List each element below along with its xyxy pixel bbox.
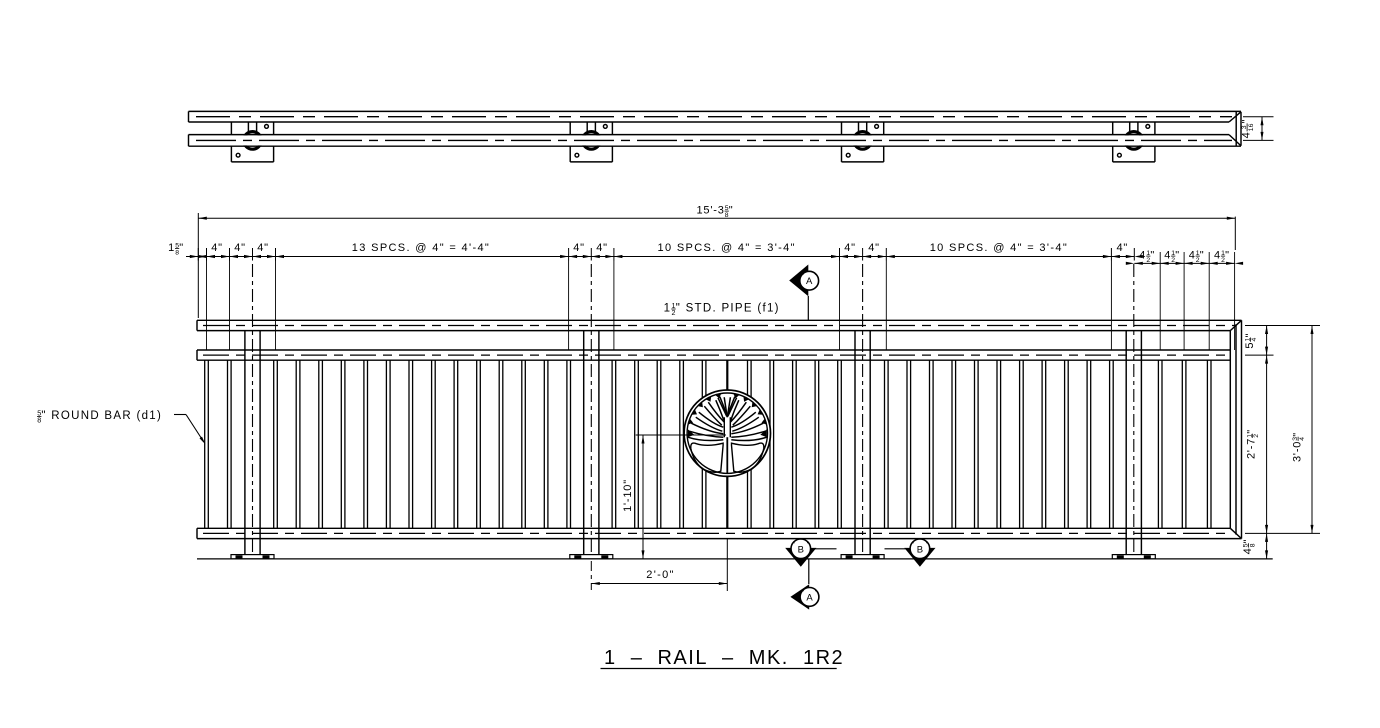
svg-text:4": 4" <box>234 242 246 254</box>
svg-text:A: A <box>806 276 813 287</box>
svg-text:": " <box>1246 429 1258 434</box>
svg-text:": " <box>1241 119 1253 124</box>
svg-text:": " <box>1200 250 1205 262</box>
svg-text:": " <box>1225 250 1230 262</box>
svg-text:": " <box>912 542 914 548</box>
svg-text:4": 4" <box>211 242 223 254</box>
svg-text:" STD. PIPE (f1): " STD. PIPE (f1) <box>676 303 780 315</box>
svg-text:": " <box>815 590 817 596</box>
svg-text:4": 4" <box>573 242 585 254</box>
svg-text:B: B <box>917 544 923 555</box>
svg-text:4: 4 <box>1164 250 1171 262</box>
svg-text:2'-7: 2'-7 <box>1246 438 1258 459</box>
svg-text:2'-0": 2'-0" <box>646 569 674 581</box>
svg-text:3'-0: 3'-0 <box>1292 441 1304 462</box>
svg-text:": " <box>1244 333 1256 338</box>
svg-text:B: B <box>798 544 804 555</box>
svg-text:": " <box>1175 250 1180 262</box>
svg-text:": " <box>729 205 734 217</box>
svg-text:": " <box>807 542 809 548</box>
svg-text:4: 4 <box>1214 250 1221 262</box>
svg-text:4": 4" <box>596 242 608 254</box>
svg-text:": " <box>815 274 817 280</box>
svg-text:": " <box>179 242 184 254</box>
svg-text:4": 4" <box>868 242 880 254</box>
svg-text:": " <box>1242 539 1254 544</box>
svg-text:": " <box>1150 250 1155 262</box>
svg-text:4: 4 <box>1242 547 1254 554</box>
svg-text:10 SPCS. @ 4" = 3'-4": 10 SPCS. @ 4" = 3'-4" <box>930 242 1068 254</box>
svg-text:5: 5 <box>1244 342 1256 349</box>
svg-text:": " <box>802 274 804 280</box>
svg-text:4": 4" <box>844 242 856 254</box>
svg-text:": " <box>926 542 928 548</box>
svg-text:1 – RAIL – MK. 1R2: 1 – RAIL – MK. 1R2 <box>604 647 844 669</box>
svg-text:13 SPCS. @ 4" = 4'-4": 13 SPCS. @ 4" = 4'-4" <box>352 242 490 254</box>
svg-text:16: 16 <box>1248 123 1255 131</box>
svg-text:1: 1 <box>168 242 175 254</box>
svg-text:4: 4 <box>1139 250 1146 262</box>
svg-text:15'-3: 15'-3 <box>697 205 725 217</box>
svg-text:A: A <box>806 592 813 603</box>
svg-text:": " <box>793 542 795 548</box>
svg-text:4: 4 <box>1241 131 1253 138</box>
svg-text:4": 4" <box>257 242 269 254</box>
svg-text:" ROUND BAR (d1): " ROUND BAR (d1) <box>41 410 162 422</box>
svg-text:10 SPCS. @ 4" = 3'-4": 10 SPCS. @ 4" = 3'-4" <box>658 242 796 254</box>
svg-text:4: 4 <box>1189 250 1196 262</box>
svg-text:": " <box>1292 432 1304 437</box>
svg-text:1: 1 <box>664 303 672 315</box>
svg-text:1'-10": 1'-10" <box>622 479 634 512</box>
svg-text:4": 4" <box>1117 242 1129 254</box>
svg-text:": " <box>802 590 804 596</box>
